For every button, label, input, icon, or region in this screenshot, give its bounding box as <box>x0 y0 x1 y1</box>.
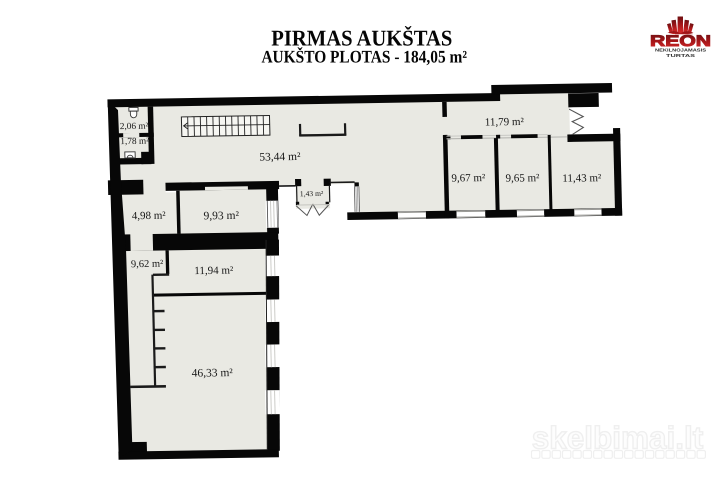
svg-text:2,06 m²: 2,06 m² <box>120 122 149 132</box>
svg-text:AUKŠTO PLOTAS - 184,05 m²: AUKŠTO PLOTAS - 184,05 m² <box>261 47 467 67</box>
svg-text:1,43 m²: 1,43 m² <box>300 189 324 198</box>
svg-text:1,78 m²: 1,78 m² <box>120 137 149 147</box>
svg-text:NEKILNOJAMASIS: NEKILNOJAMASIS <box>655 48 706 53</box>
svg-text:46,33 m²: 46,33 m² <box>192 367 234 380</box>
svg-text:53,44 m²: 53,44 m² <box>259 151 301 164</box>
svg-text:11,94 m²: 11,94 m² <box>194 265 234 278</box>
svg-text:11,79 m²: 11,79 m² <box>485 116 525 129</box>
svg-text:9,67 m²: 9,67 m² <box>451 172 486 185</box>
svg-text:11,43 m²: 11,43 m² <box>562 172 602 185</box>
svg-text:4,98 m²: 4,98 m² <box>132 210 167 223</box>
svg-text:9,65 m²: 9,65 m² <box>505 172 540 185</box>
svg-text:TURTAS: TURTAS <box>666 53 695 58</box>
svg-text:9,93 m²: 9,93 m² <box>203 210 239 223</box>
svg-text:9,62 m²: 9,62 m² <box>131 259 164 271</box>
